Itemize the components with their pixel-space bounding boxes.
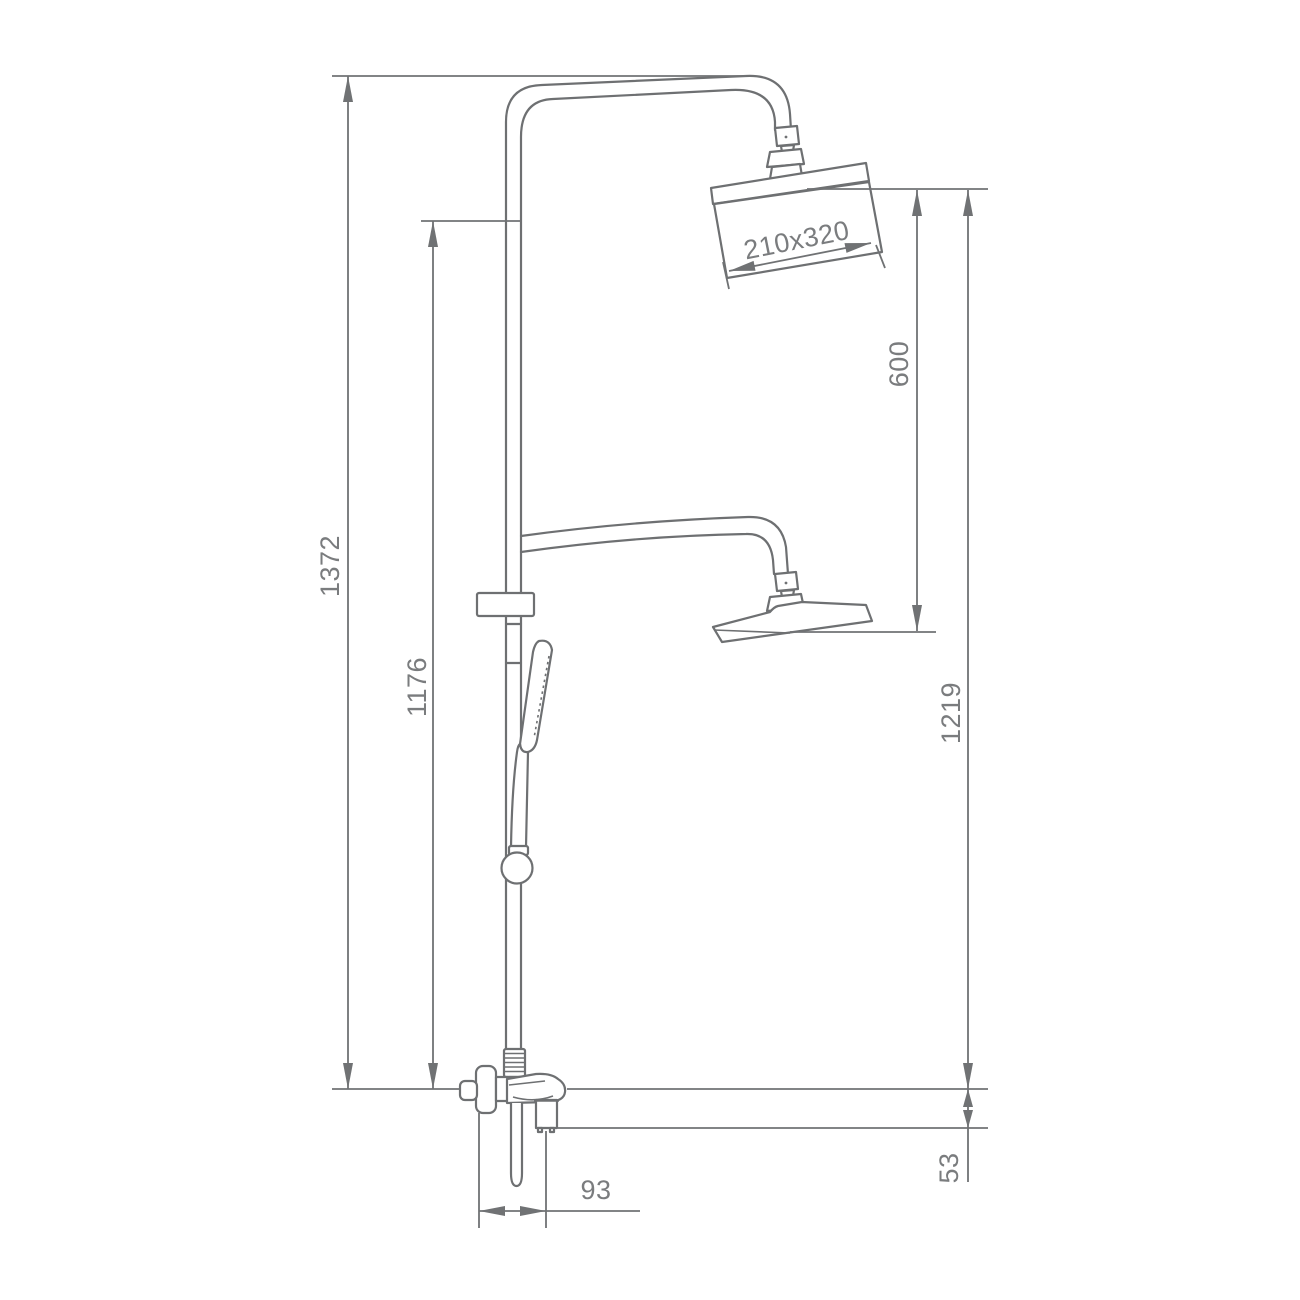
mixer-outlet-cylinder (536, 1100, 557, 1128)
slider-knob (502, 853, 533, 884)
dimension-93: 93 (479, 1113, 640, 1228)
lower-joint-nut (775, 572, 798, 591)
arrowhead-600-up (912, 190, 922, 216)
top-joint-nut (775, 126, 799, 146)
arrowhead-93-left (479, 1206, 505, 1216)
dimension-600: 600 (884, 190, 922, 631)
mixer-wall-flange (476, 1066, 496, 1113)
mixer-drop-tube (511, 1103, 522, 1186)
arrowhead-1176-up (428, 221, 438, 247)
lower-arm-inner-edge (521, 534, 774, 574)
arrowhead-1372-up (343, 76, 353, 102)
dim-label-53: 53 (934, 1152, 964, 1183)
technical-drawing-canvas: 1372 1176 600 1219 53 (0, 0, 1300, 1300)
arrowhead-1219-down (963, 1063, 973, 1089)
dimension-1372: 1372 (315, 76, 353, 1089)
shower-dimension-drawing: 1372 1176 600 1219 53 (0, 0, 1300, 1300)
dimension-1176: 1176 (402, 221, 438, 1089)
top-shower-head (711, 163, 882, 278)
arrowhead-1372-down (343, 1063, 353, 1089)
top-joint-pivot-dot (785, 136, 788, 139)
arrowhead-600-down (912, 605, 922, 631)
lower-shower-arm (521, 517, 788, 574)
lower-joint-pivot-dot (785, 582, 788, 585)
arrowhead-53-up (963, 1089, 973, 1107)
arrowhead-1219-up (963, 190, 973, 216)
dimension-53: 53 (934, 1089, 973, 1184)
mixer-outlet-foot-right (550, 1128, 554, 1132)
lower-head-plate (713, 602, 872, 642)
hand-shower-grip (511, 744, 528, 847)
mixer-handle-knob (460, 1081, 477, 1100)
slider-bracket (477, 593, 534, 616)
lower-arm-outer-edge (521, 517, 788, 574)
dim-label-1219: 1219 (936, 682, 966, 744)
dim-label-93: 93 (580, 1175, 611, 1205)
dimension-1219: 1219 (936, 190, 973, 1089)
dim-label-1176: 1176 (402, 657, 432, 717)
mixer-valve (460, 1066, 565, 1186)
arrowhead-93-right (520, 1206, 546, 1216)
arrowhead-1176-down (428, 1063, 438, 1089)
mixer-body (507, 1074, 565, 1103)
lower-shower-head (713, 602, 872, 642)
mixer-outlet-foot-left (538, 1128, 542, 1132)
dim-label-600: 600 (884, 341, 914, 388)
arrowhead-53-down (963, 1110, 973, 1128)
top-ball-joint (767, 126, 804, 179)
hand-shower (502, 641, 553, 884)
dim-label-1372: 1372 (315, 535, 345, 597)
hand-shower-head (520, 641, 552, 752)
dimension-annotations: 1372 1176 600 1219 53 (315, 76, 988, 1228)
